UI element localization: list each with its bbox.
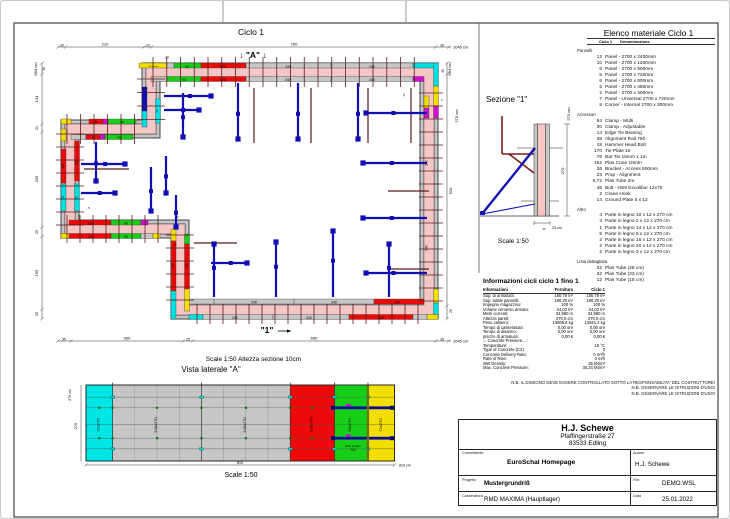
prop-foot	[386, 241, 391, 246]
prop-foot	[122, 161, 127, 166]
vista-title: Vista laterale "A"	[131, 365, 291, 374]
dim-label: 120	[220, 78, 226, 82]
info-cell	[541, 366, 573, 371]
dim-label: 255	[34, 175, 39, 182]
prop-foot	[173, 224, 178, 229]
prop-foot	[360, 160, 365, 165]
alignment-rail	[333, 406, 394, 409]
dim-label: 90	[185, 65, 189, 69]
dim-label: 72	[61, 196, 65, 200]
company-name: H.J. Schewe	[459, 423, 716, 433]
dim-label: 120	[61, 163, 65, 169]
material-name: Plas Tube (18 cm)	[605, 278, 644, 284]
dim-label: 20	[146, 44, 150, 48]
dim-label: 14	[402, 93, 406, 97]
dim-label: 72	[155, 109, 159, 113]
clamp-mark	[199, 448, 203, 450]
info-row: Max. Concrete Pressure:30,24 kN/m²	[483, 366, 605, 371]
dim-label: 240	[331, 301, 337, 305]
dim-label: 684 cm	[33, 62, 38, 76]
dim-label: 25	[186, 338, 190, 342]
prop-coupler	[391, 111, 395, 115]
prop-foot	[211, 241, 216, 246]
clamp-magenta	[346, 404, 351, 406]
prop-foot	[360, 215, 365, 220]
prop-coupler	[390, 216, 394, 220]
dim-label: 210	[102, 42, 109, 47]
dim-label: 30	[42, 67, 46, 71]
material-section-label: Pannelli	[577, 48, 717, 53]
dim-label: 240	[425, 160, 429, 166]
prop-coupler	[356, 112, 360, 116]
prop-coupler	[274, 265, 278, 269]
dim-label: 25	[35, 312, 39, 316]
prop-foot	[244, 260, 249, 265]
dim-label: 35	[542, 227, 546, 231]
dim-label: 25 cm	[552, 226, 562, 230]
file-value: DEMO.WSL	[662, 480, 696, 487]
prop-foot	[93, 178, 98, 183]
material-row: 14Ground Plate 5 x 12	[577, 198, 717, 204]
dim-label: 240	[285, 78, 291, 82]
clamp-mark	[288, 396, 292, 398]
dim-label: 240	[251, 301, 257, 305]
rail-end	[331, 436, 335, 440]
dim-label: 810	[237, 461, 243, 465]
material-qty: 14	[577, 198, 602, 204]
prop-coupler	[174, 211, 178, 215]
dim-label: ↓ "A" ↓	[239, 50, 266, 60]
tie-dot	[245, 407, 247, 409]
clamp-mark	[199, 396, 203, 398]
dim-label: "1"	[261, 325, 274, 335]
dim-label: 300	[124, 336, 131, 341]
dim-label: 90	[117, 135, 121, 139]
dim-label: 240x270	[153, 417, 158, 433]
materials-col1: Ciclo 1	[599, 39, 612, 44]
dim-label: 20	[60, 44, 64, 48]
info-table: Informazioni cicli ciclo 1 fino 1 Inform…	[483, 278, 605, 371]
tie-dot	[289, 437, 291, 439]
prop-foot	[208, 93, 213, 98]
vista-scale: Scale 1:50	[181, 472, 301, 479]
dim-label: 810 cm	[399, 464, 411, 468]
dim-label: 270 cm	[68, 389, 72, 401]
info-cell: Max. Concrete Pressure:	[483, 366, 541, 371]
data-value: 25.01.2022	[662, 496, 693, 503]
info-col-informazioni: Informazioni	[483, 287, 541, 292]
dim-label: 90	[124, 235, 128, 239]
sezione-scale: Scale 1:50	[498, 238, 529, 245]
material-qty: 8	[577, 103, 602, 109]
dim-label: 240x270	[242, 417, 247, 433]
prop-coupler	[296, 112, 300, 116]
prop-foot	[163, 190, 168, 195]
material-name: Corner - Internal 2700 x 300mm	[605, 103, 673, 109]
clamp-mark	[333, 396, 337, 398]
prop-coupler	[181, 108, 185, 112]
drawing-sheet-page: 2021020760351045 cm↓ "A" ↓10684 cm301342…	[0, 0, 730, 519]
tie-dot	[112, 437, 114, 439]
material-section-label: Altro	[577, 207, 717, 212]
prop-coupler	[229, 261, 233, 265]
rail-end	[390, 436, 394, 440]
dim-label: 240	[425, 245, 429, 251]
casseratura-label: Casseratura	[462, 494, 483, 498]
tie-dot	[245, 437, 247, 439]
prop-coupler	[387, 266, 391, 270]
tie-dot	[311, 407, 313, 409]
prop-coupler	[188, 94, 192, 98]
prop-foot	[363, 110, 368, 115]
dim-label: 10	[165, 56, 169, 60]
tie-dot	[200, 437, 202, 439]
materials-col2: Denominazione	[620, 39, 650, 44]
committente-label: Committente	[462, 451, 484, 455]
dim-label: 120	[220, 65, 226, 69]
info-col-ciclo1: Ciclo 1	[573, 287, 605, 292]
dim-label: 620	[448, 187, 453, 194]
material-name: Parte in legno 3 x 12 x 270 cm	[605, 250, 670, 256]
dim-label: 1045 cm	[453, 45, 469, 50]
dim-label: 120	[87, 222, 93, 226]
clamp-magenta	[346, 434, 351, 436]
dim-label: 45	[94, 120, 98, 124]
prop-foot	[273, 239, 278, 244]
dim-label: 72	[75, 196, 79, 200]
prop-coupler	[331, 259, 335, 263]
dim-label: 45	[91, 135, 95, 139]
dim-label: 26	[175, 215, 179, 219]
company-address1: Pfaffingerstraße 27	[459, 433, 716, 440]
prop-foot	[355, 136, 360, 141]
rail-end	[331, 406, 335, 410]
dim-label: 72x270	[95, 418, 100, 432]
prop-coupler	[149, 189, 153, 193]
tie-dot	[311, 437, 313, 439]
info-cell: 30,24 kN/m²	[573, 366, 605, 371]
committente-value: EuroSchal Homepage	[507, 459, 575, 466]
prop-foot	[330, 228, 335, 233]
prop-coupler	[181, 115, 185, 119]
material-section-label: Accessori	[577, 112, 717, 117]
materials-list: Pannelli12Panel - 2700 x 2400mm10Panel -…	[577, 45, 717, 284]
prop-foot	[180, 134, 185, 139]
prop-coupler	[164, 174, 168, 178]
dim-label: Universal	[148, 65, 158, 68]
rail-end	[390, 406, 394, 410]
company-address2: 83533 Edling	[459, 440, 716, 447]
dim-label: 240	[232, 316, 238, 320]
dim-label: 240	[285, 65, 291, 69]
data-label: Data	[633, 494, 641, 498]
material-row: 2Parte in legno 3 x 12 x 270 cm	[577, 250, 717, 256]
info-title: Informazioni cicli ciclo 1 fino 1	[483, 278, 605, 285]
dim-label: 35	[440, 338, 444, 342]
dim-label: 270 cm	[566, 107, 571, 121]
tie-dot	[200, 407, 202, 409]
clamp-mark	[111, 448, 115, 450]
prop-foot	[295, 136, 300, 141]
tie-dot	[156, 407, 158, 409]
autore-label: Autore	[633, 451, 644, 455]
plan-title: Ciclo 1	[216, 27, 286, 37]
autore-value: H.J. Schewe	[635, 461, 670, 468]
prop-coupler	[212, 266, 216, 270]
prop-coupler	[94, 161, 98, 165]
prop-foot	[196, 107, 201, 112]
dim-label: 20	[35, 126, 39, 130]
note-line: N.B. OSSERVARE LE ISTRUZIONI D'USO!	[441, 391, 715, 396]
dim-label: 25	[35, 230, 39, 234]
material-qty: 2	[577, 250, 602, 256]
dim-label: 90	[182, 78, 186, 82]
material-row: 8Corner - Internal 2700 x 300mm	[577, 103, 717, 109]
dim-label: 35	[440, 44, 444, 48]
dim-label: 30	[441, 69, 445, 73]
dim-label: 90	[120, 120, 124, 124]
prop-coupler	[103, 162, 107, 166]
prop-foot	[235, 136, 240, 141]
prop-coupler	[98, 191, 102, 195]
material-name: Ground Plate 5 x 12	[605, 198, 648, 204]
prop-foot	[148, 208, 153, 213]
dim-label: Parte in legno	[345, 444, 362, 448]
file-label: File.	[633, 478, 640, 482]
tie-dot	[98, 437, 100, 439]
prop-coupler	[236, 112, 240, 116]
clamp-mark	[111, 396, 115, 398]
material-section-label: Lista dettagliata	[577, 259, 717, 264]
dim-label: 684 cm	[447, 62, 452, 76]
prop-coupler	[391, 271, 395, 275]
dim-label: 120x270	[308, 417, 313, 433]
info-col-fornitura: Fornitura	[541, 287, 573, 292]
dim-label: 1045 cm	[453, 339, 469, 344]
clamp-mark	[333, 448, 337, 450]
dim-label: 240	[369, 65, 375, 69]
progetto-value: Mustergrundriß	[484, 480, 530, 487]
dim-label: 270	[560, 167, 565, 174]
dim-label: 120	[378, 316, 384, 320]
dim-label: 240	[369, 78, 375, 82]
disclaimer-notes: N.B. IL DISEGNO DEVE ESSERE CONTROLLATO …	[441, 380, 715, 396]
prop-foot	[112, 190, 117, 195]
prop-coupler	[390, 161, 394, 165]
title-block-company: H.J. Schewe Pfaffingerstraße 27 83533 Ed…	[459, 420, 716, 449]
dim-label: 120	[75, 160, 79, 166]
sezione-title: Sezione "1"	[486, 95, 527, 104]
dim-label: 120	[394, 301, 400, 305]
dim-label: 134	[34, 95, 39, 102]
tie-dot	[98, 407, 100, 409]
dim-label: 120	[185, 263, 189, 269]
dim-label: 650	[311, 336, 318, 341]
dim-label: 270	[74, 423, 78, 429]
progetto-label: Progetto	[462, 478, 476, 482]
timber-strip	[367, 385, 369, 461]
dim-label: 90x270	[347, 418, 352, 432]
dim-label: 120	[171, 263, 175, 269]
tie-dot	[156, 437, 158, 439]
dim-label: 90	[124, 222, 128, 226]
dim-label: 760	[291, 42, 298, 47]
tie-dot	[289, 407, 291, 409]
plan-scale-note: Scale 1:50 Altezza sezione 10cm	[151, 356, 356, 363]
materials-title: Elenco materiale Ciclo 1	[586, 28, 711, 38]
dim-label: 240	[306, 316, 312, 320]
dim-label: 270 cm	[454, 109, 459, 123]
dim-label: 25	[449, 309, 453, 313]
dim-label: 20	[173, 243, 177, 247]
dim-label: 72x270	[378, 418, 383, 432]
prop-foot	[363, 270, 368, 275]
dim-label: 35	[62, 338, 66, 342]
dim-label: 195	[34, 269, 39, 276]
title-block: H.J. Schewe Pfaffingerstraße 27 83533 Ed…	[458, 419, 717, 506]
dim-label: 120	[87, 235, 93, 239]
casseratura-value: RMD MAXIMA (Hauptlager)	[484, 496, 560, 503]
dim-label: 3x12	[350, 448, 356, 452]
tie-dot	[112, 407, 114, 409]
clamp-mark	[288, 448, 292, 450]
alignment-rail	[333, 437, 394, 440]
